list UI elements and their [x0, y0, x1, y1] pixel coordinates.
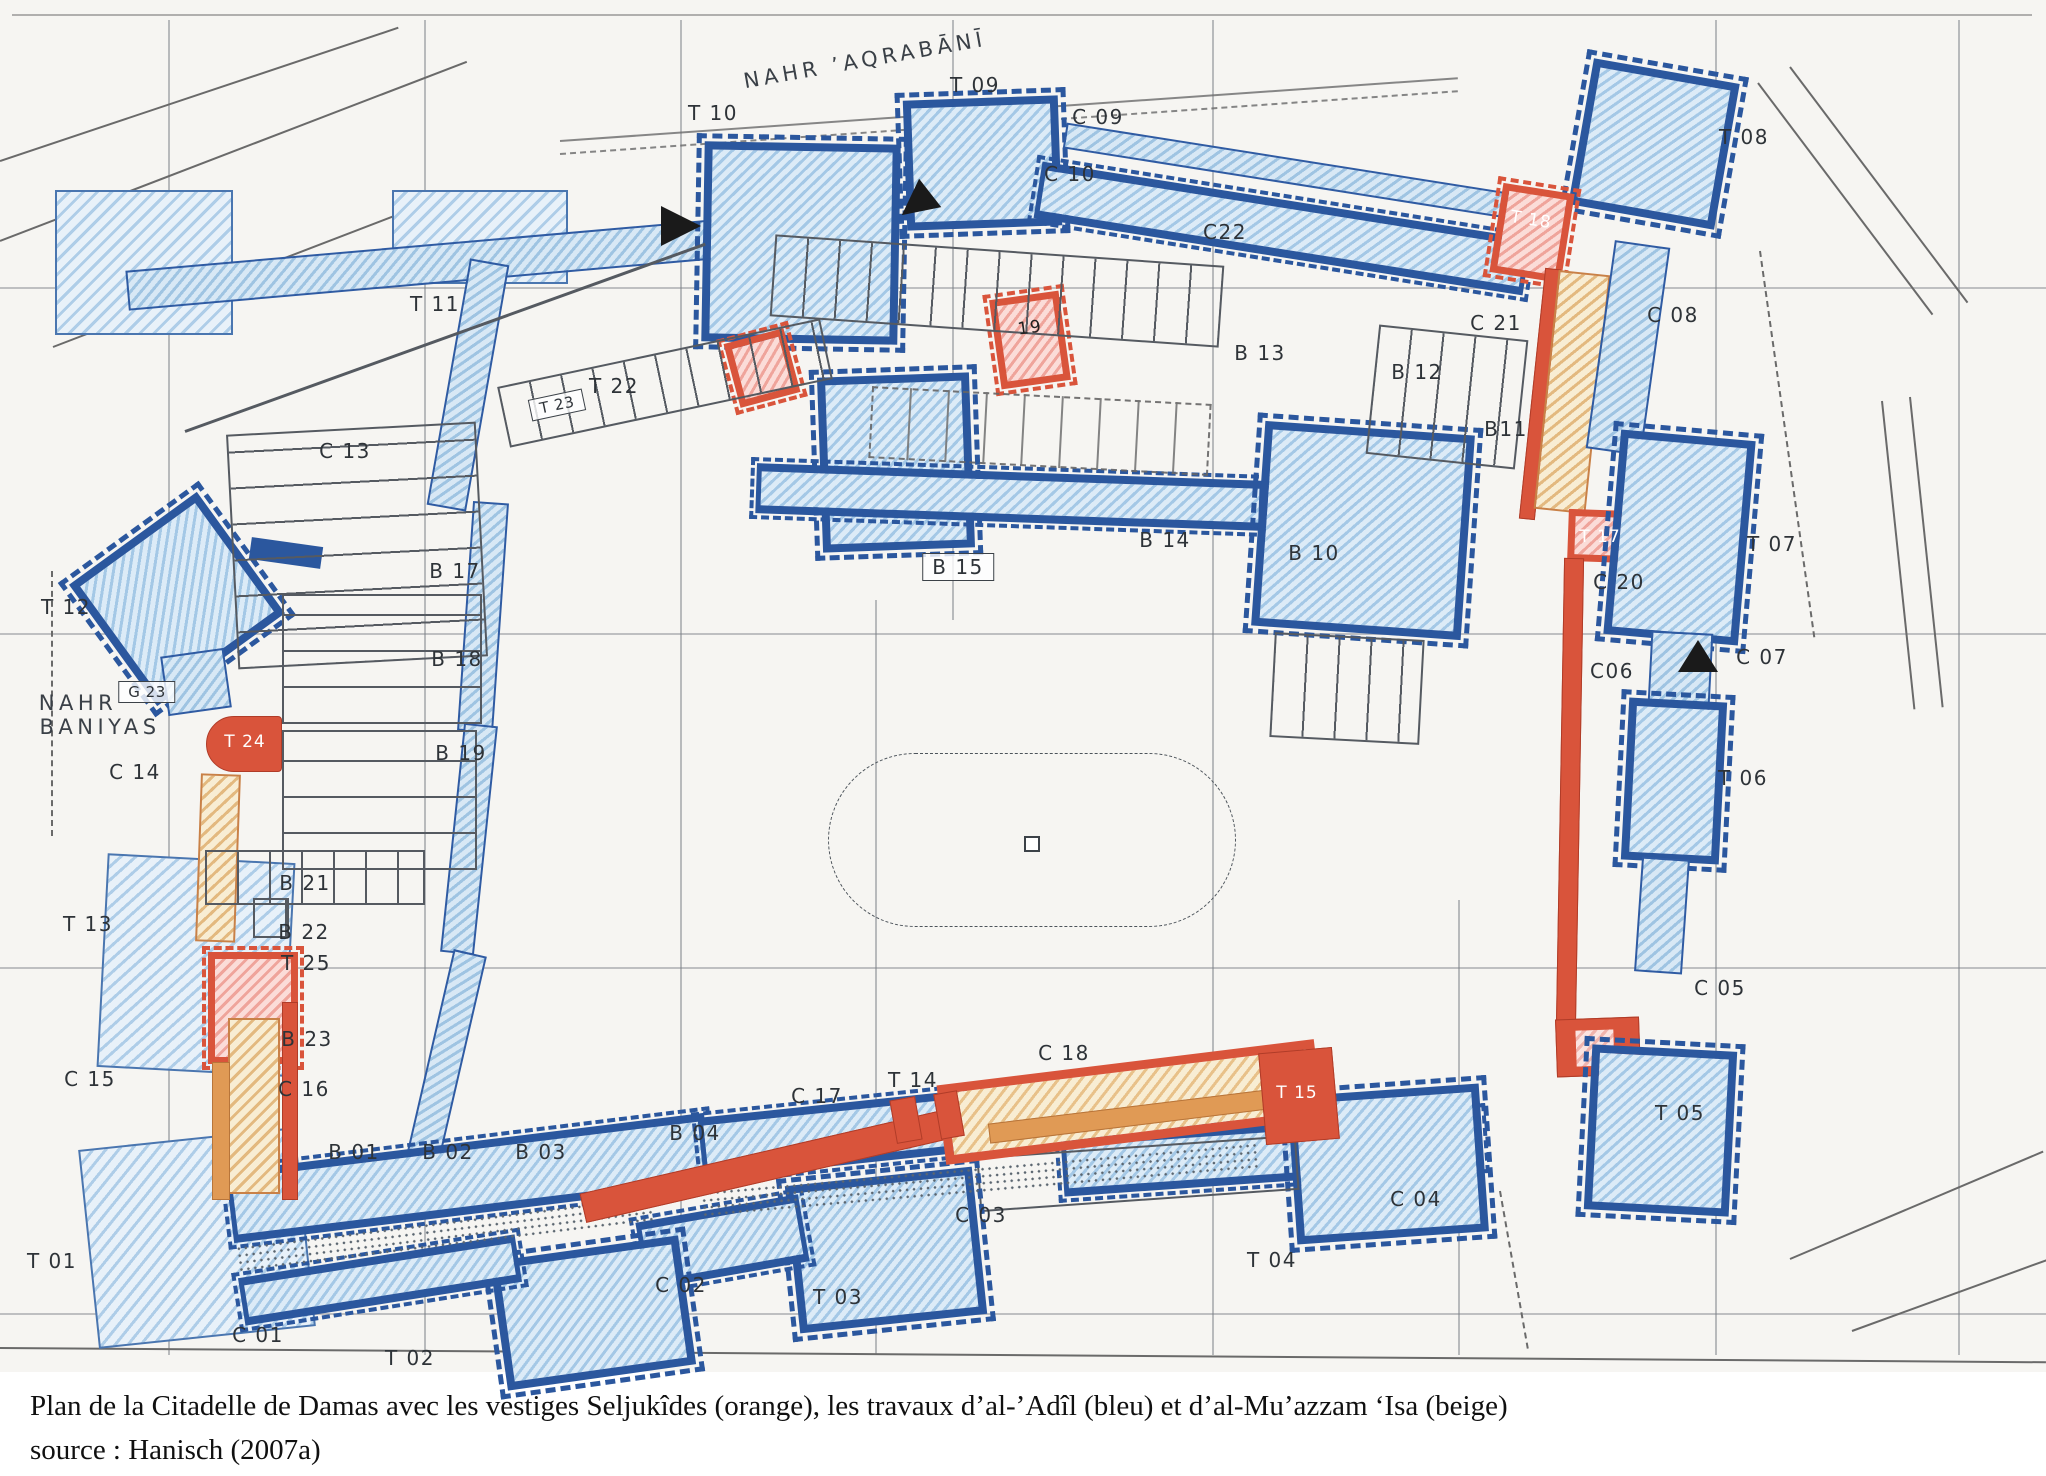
label-c03: C 03	[955, 1203, 1007, 1227]
label-t14: T 14	[888, 1068, 938, 1092]
grid-line-v	[1958, 20, 1960, 1355]
label-b01: B 01	[328, 1140, 380, 1164]
label-b17: B 17	[429, 559, 481, 583]
label-c08: C 08	[1647, 303, 1699, 327]
street-line	[1789, 66, 1968, 303]
courtyard-center-mark	[1024, 836, 1040, 852]
label-b12: B 12	[1391, 360, 1443, 384]
wall-b23-orange	[212, 1062, 230, 1200]
street-line	[0, 27, 399, 162]
label-t03: T 03	[813, 1285, 863, 1309]
label-t04: T 04	[1247, 1248, 1297, 1272]
label-t02: T 02	[385, 1346, 435, 1370]
label-t15: T 15	[1276, 1083, 1317, 1103]
wall-c16-beige	[228, 1018, 280, 1194]
tower-t02	[490, 1235, 696, 1390]
tower-c20	[1603, 430, 1755, 646]
label-t19: 19	[1016, 316, 1043, 339]
tower-t08	[1568, 58, 1739, 229]
label-c09: C 09	[1072, 105, 1124, 129]
label-b21: B 21	[279, 871, 331, 895]
label-b02: B 02	[422, 1140, 474, 1164]
label-c06: C06	[1590, 659, 1634, 683]
label-c15: C 15	[64, 1067, 116, 1091]
block-nw-1	[55, 190, 233, 335]
moat-line	[1759, 251, 1815, 637]
moat-line	[1499, 1191, 1529, 1349]
label-b11: B11	[1484, 417, 1528, 441]
street-line	[1909, 397, 1944, 707]
label-b13: B 13	[1234, 341, 1286, 365]
label-t11: T 11	[410, 292, 460, 316]
street-line	[1757, 82, 1933, 315]
tower-t05	[1584, 1044, 1737, 1216]
caption-line-2: source : Hanisch (2007a)	[30, 1429, 2010, 1473]
wall-c06-seljuk	[1556, 558, 1584, 1028]
label-t06: T 06	[1718, 766, 1768, 790]
building-c13-rooms	[497, 318, 833, 447]
label-c16: C 16	[278, 1077, 330, 1101]
building-b10-rooms	[1269, 632, 1424, 745]
label-c20: C 20	[1593, 570, 1645, 594]
label-c18: C 18	[1038, 1041, 1090, 1065]
label-b04: B 04	[669, 1121, 721, 1145]
entrance-arrow-west-icon	[661, 206, 701, 246]
street-line	[0, 1347, 2046, 1363]
building-b12-rooms	[1366, 325, 1529, 470]
label-t07: T 07	[1747, 532, 1797, 556]
label-nahr-baniyas-1: NAHR	[39, 691, 117, 715]
label-nahr-baniyas-2: BANIYAS	[39, 715, 160, 739]
label-t25: T 25	[281, 951, 331, 975]
scanned-plan-page: NAHR ’AQRABĀNĪT 10T 09C 09T 08C 10C22T 1…	[0, 0, 2046, 1476]
label-b22: B 22	[278, 920, 330, 944]
map-frame-line	[12, 14, 2032, 16]
label-c07: C 07	[1736, 645, 1788, 669]
label-t10: T 10	[688, 101, 738, 125]
citadel-plan-map: NAHR ’AQRABĀNĪT 10T 09C 09T 08C 10C22T 1…	[0, 0, 2046, 1372]
label-b23: B 23	[281, 1027, 333, 1051]
label-c10: C 10	[1044, 162, 1096, 186]
label-c01: C 01	[232, 1323, 284, 1347]
label-t17: T 17	[1579, 527, 1620, 547]
label-t12: T 12	[41, 595, 91, 619]
street-line	[1881, 401, 1915, 710]
label-t13: T 13	[63, 912, 113, 936]
label-b15: B 15	[922, 553, 994, 581]
label-c17: C 17	[791, 1084, 843, 1108]
label-c21: C 21	[1470, 311, 1522, 335]
tower-t06	[1621, 698, 1727, 865]
label-c13: C 13	[319, 439, 371, 463]
label-b10: B 10	[1288, 541, 1340, 565]
wall-c05	[1634, 856, 1690, 974]
label-b03: B 03	[515, 1140, 567, 1164]
label-c04: C 04	[1390, 1187, 1442, 1211]
label-c02: C 02	[655, 1273, 707, 1297]
label-b18: B 18	[431, 647, 483, 671]
figure-caption: Plan de la Citadelle de Damas avec les v…	[30, 1385, 2010, 1472]
street-line	[1852, 1257, 2046, 1332]
tower-t18-seljuk	[1489, 183, 1574, 283]
label-g23: G 23	[118, 681, 175, 703]
label-c22: C22	[1203, 220, 1247, 244]
label-t05: T 05	[1655, 1101, 1705, 1125]
label-t01: T 01	[27, 1249, 77, 1273]
street-line	[1790, 1151, 2044, 1260]
label-t22: T 22	[589, 374, 639, 398]
label-c14: C 14	[109, 760, 161, 784]
label-t09: T 09	[950, 73, 1000, 97]
label-b19: B 19	[435, 741, 487, 765]
label-b14: B 14	[1139, 528, 1191, 552]
label-t24: T 24	[224, 732, 265, 752]
label-t08: T 08	[1719, 125, 1769, 149]
label-c05: C 05	[1694, 976, 1746, 1000]
caption-line-1: Plan de la Citadelle de Damas avec les v…	[30, 1385, 2010, 1429]
entrance-arrow-east-icon	[1678, 640, 1718, 672]
